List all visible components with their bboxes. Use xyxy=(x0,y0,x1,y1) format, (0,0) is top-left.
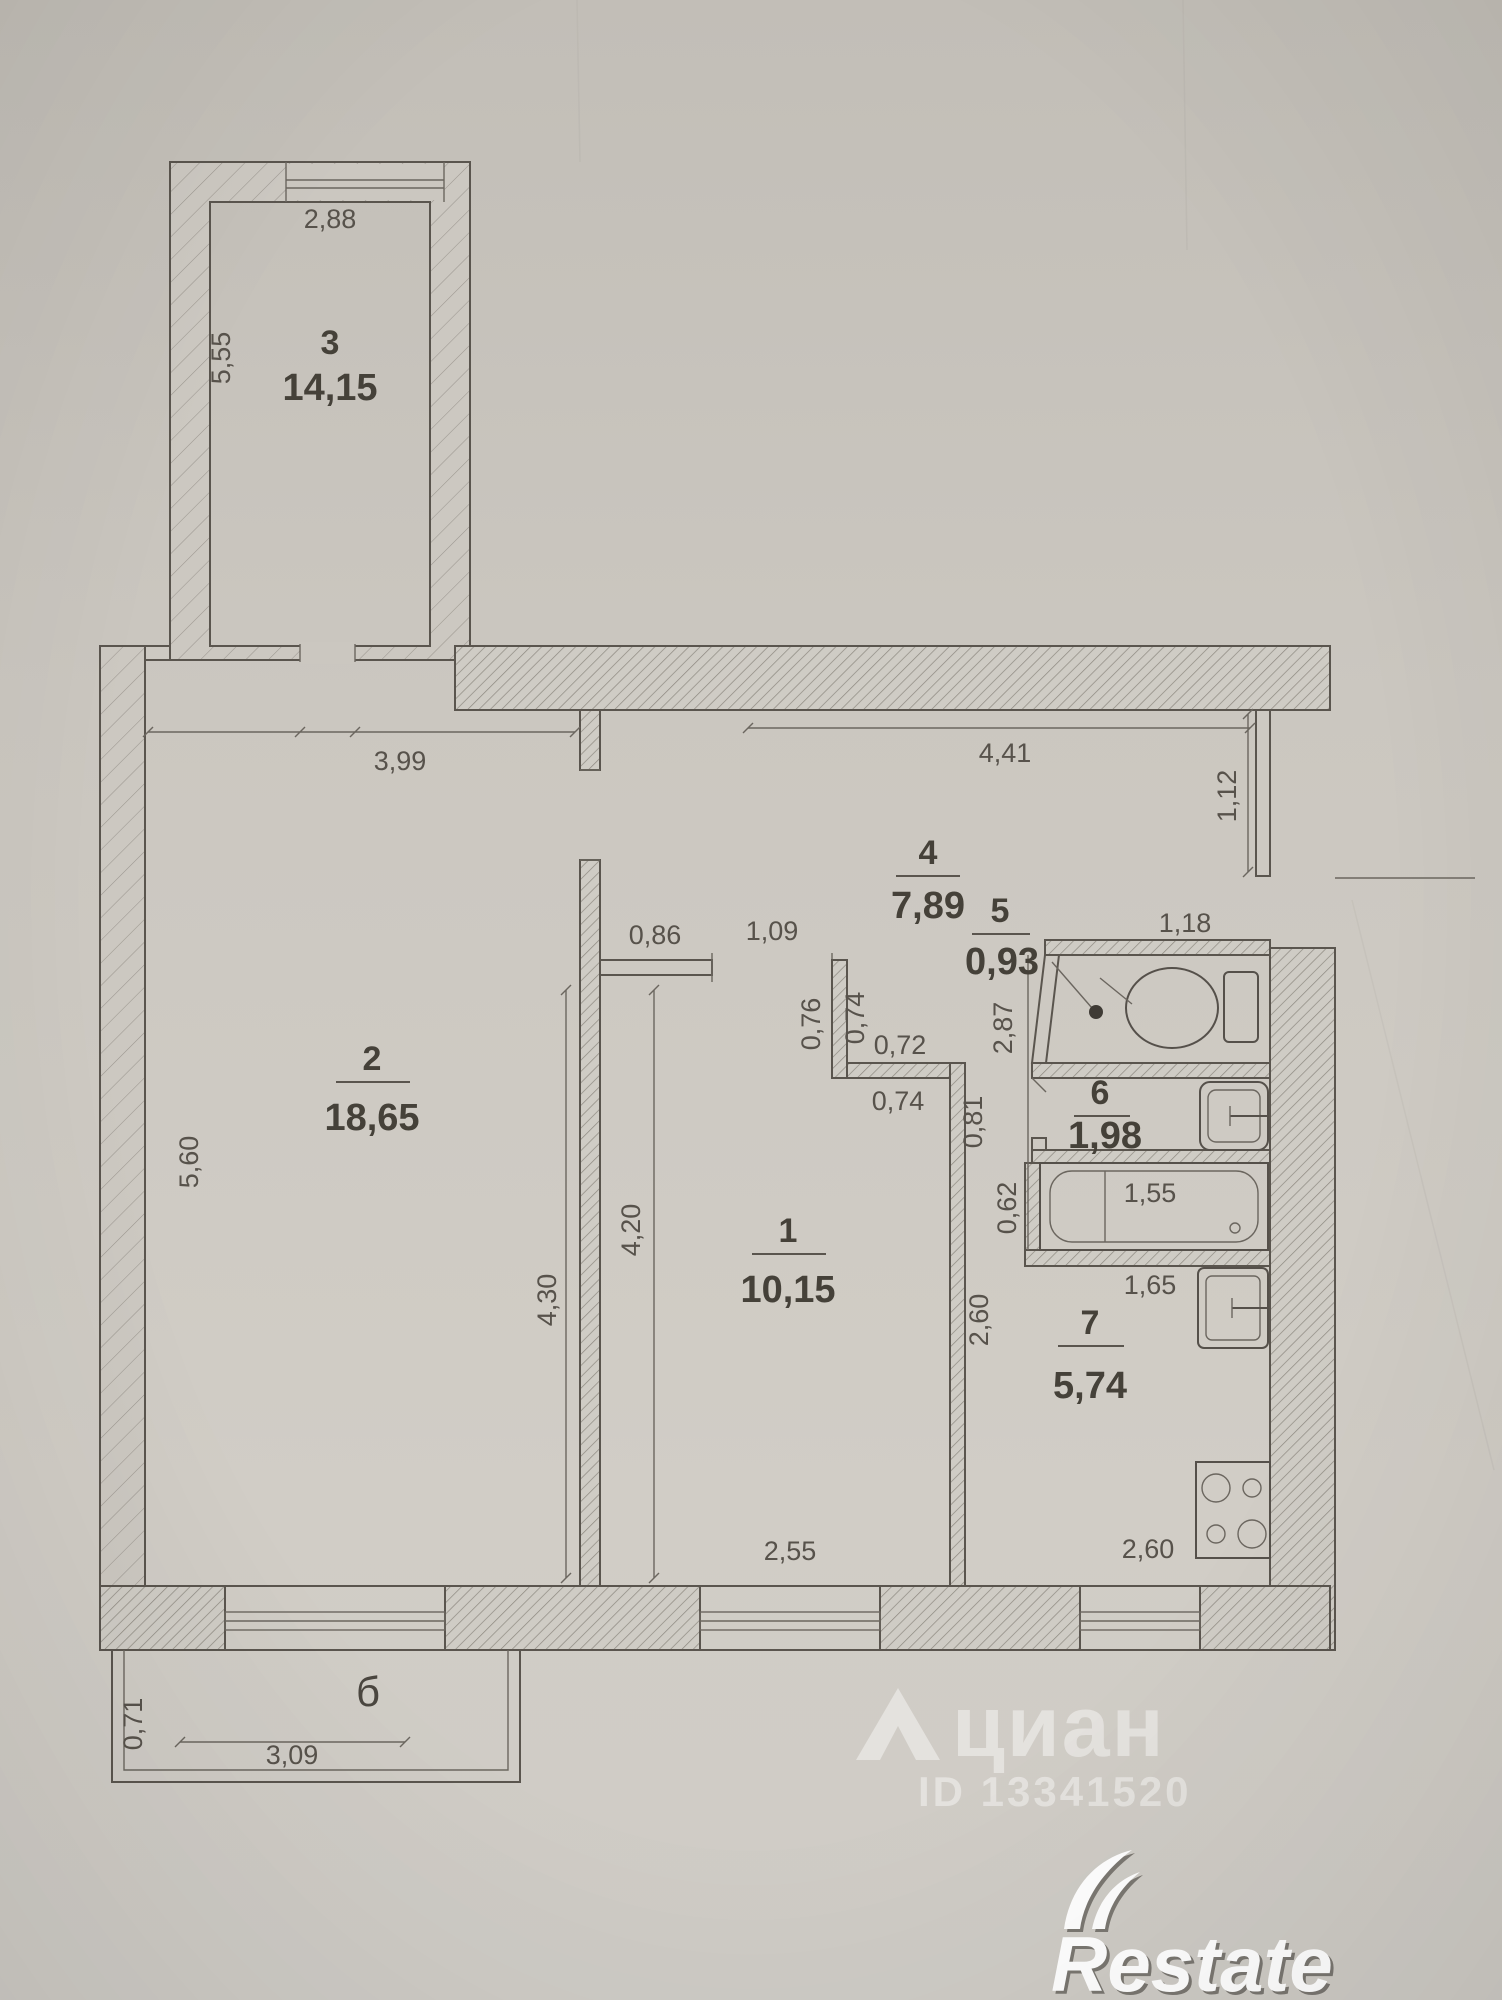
room3-window-opening xyxy=(286,164,444,200)
dim-hall-width: 2,55 xyxy=(764,1536,817,1566)
room2-number: 2 xyxy=(363,1040,382,1078)
dim-balcony-width: 3,09 xyxy=(266,1740,319,1770)
dim-room2-height-left: 5,60 xyxy=(174,1136,204,1189)
floor-plan-drawing: 3 14,15 2 18,65 1 10,15 4 7,89 5 0,93 6 … xyxy=(0,0,1502,2000)
dim-bath-side: 0,62 xyxy=(992,1182,1022,1235)
dim-step-side: 0,81 xyxy=(958,1096,988,1149)
cian-watermark-text: циан xyxy=(952,1679,1166,1775)
scanned-floor-plan: 3 14,15 2 18,65 1 10,15 4 7,89 5 0,93 6 … xyxy=(0,0,1502,2000)
dim-step-right: 0,74 xyxy=(840,992,870,1045)
dim-balcony-depth: 0,71 xyxy=(118,1698,148,1751)
room2-area: 18,65 xyxy=(324,1097,419,1139)
dim-kitchen-height: 2,60 xyxy=(964,1294,994,1347)
room3-door-opening xyxy=(300,642,355,664)
room5-area: 0,93 xyxy=(965,941,1039,983)
dim-kitchen-width: 2,60 xyxy=(1122,1534,1175,1564)
cian-listing-id: ID 13341520 xyxy=(918,1768,1192,1815)
room5-number: 5 xyxy=(991,892,1010,930)
entry-side-wall xyxy=(1256,710,1270,876)
room2-right-wall xyxy=(580,860,600,1586)
balcony-label: б xyxy=(356,1668,380,1715)
dim-corridor-width: 4,41 xyxy=(979,738,1032,768)
room1-number: 1 xyxy=(779,1212,798,1250)
room4-area: 7,89 xyxy=(891,885,965,927)
room6-area: 1,98 xyxy=(1068,1115,1142,1157)
room3-number: 3 xyxy=(321,324,340,362)
right-wall xyxy=(1270,948,1335,1650)
dim-room2-width: 3,99 xyxy=(374,746,427,776)
restate-brand-text: Restate xyxy=(1051,1920,1333,2000)
dim-step-bottom: 0,74 xyxy=(872,1086,925,1116)
dim-step-left: 0,76 xyxy=(796,998,826,1051)
left-wall xyxy=(100,646,145,1586)
room7-area: 5,74 xyxy=(1053,1365,1127,1407)
dim-san-wall: 2,87 xyxy=(988,1002,1018,1055)
dim-bath-length: 1,55 xyxy=(1124,1178,1177,1208)
dim-step-top: 0,72 xyxy=(874,1030,927,1060)
dim-room2-height-right: 4,30 xyxy=(532,1274,562,1327)
room7-number: 7 xyxy=(1081,1304,1100,1342)
dim-room3-width: 2,88 xyxy=(304,204,357,234)
dim-hall-wall: 0,86 xyxy=(629,920,682,950)
dim-hall-height: 4,20 xyxy=(616,1204,646,1257)
toilet-dot xyxy=(1089,1005,1103,1019)
dim-toilet-width: 1,18 xyxy=(1159,908,1212,938)
dim-bath-width: 1,65 xyxy=(1124,1270,1177,1300)
dim-hall-door: 1,09 xyxy=(746,916,799,946)
top-wall xyxy=(455,646,1330,710)
dim-entry-wall: 1,12 xyxy=(1212,770,1242,823)
room4-number: 4 xyxy=(919,834,938,872)
toilet-top-wall xyxy=(1045,940,1270,955)
room3-area: 14,15 xyxy=(282,367,377,409)
dim-room3-height: 5,55 xyxy=(206,332,236,385)
hall-top-wall xyxy=(600,960,712,975)
room1-area: 10,15 xyxy=(740,1269,835,1311)
room6-number: 6 xyxy=(1091,1074,1110,1112)
